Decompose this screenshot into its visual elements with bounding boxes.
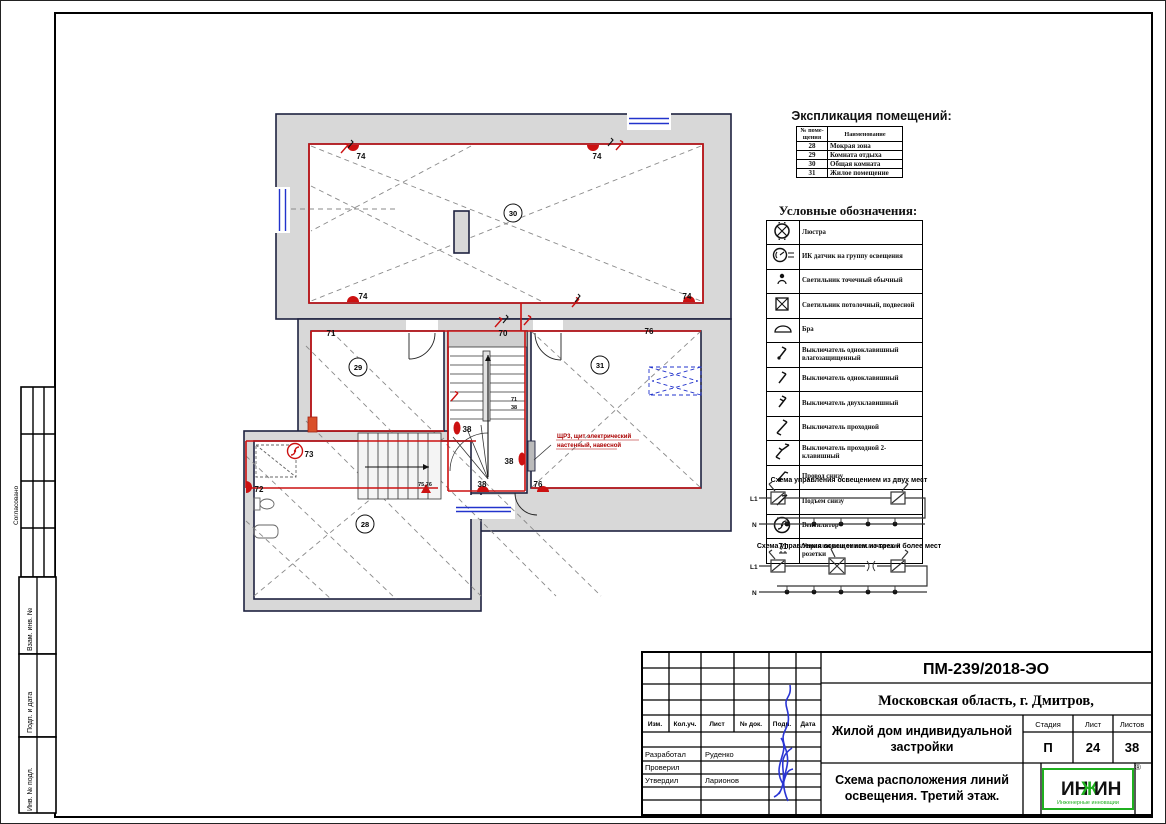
panel-note-line1: ЩР3, щит электрический — [557, 433, 631, 440]
col-izm: Изм. — [648, 721, 663, 728]
schematic-multi-places: L1 N — [750, 547, 927, 597]
explication-col-num: № поме- щения — [797, 127, 828, 142]
chandelier-icon — [770, 222, 796, 240]
legend-label: Выключатель проходной 2-клавишный — [800, 441, 923, 465]
switch-pass-icon — [770, 418, 796, 436]
chimney — [454, 211, 469, 253]
legend-row: Выключатель проходной — [767, 416, 923, 440]
legend-label: Бра — [800, 318, 923, 342]
room-number: 28 — [361, 520, 369, 529]
legend-label: Люстра — [800, 221, 923, 245]
legend-label: Выключатель двухклавишный — [800, 392, 923, 416]
role-approved: Утвердил — [645, 776, 678, 785]
project-title-line2: застройки — [891, 740, 954, 754]
room-num-cell: 31 — [797, 169, 828, 178]
room-num-cell: 30 — [797, 160, 828, 169]
legend-row: Выключатель одноклавишный влагозащищенны… — [767, 343, 923, 367]
legend-label: Выключатель одноклавишный — [800, 367, 923, 391]
room-name-cell: Жилое помещение — [828, 169, 903, 178]
room-number: 29 — [354, 363, 362, 372]
sheet-title-line2: освещения. Третий этаж. — [845, 789, 1000, 803]
switch-double-icon — [770, 393, 796, 411]
sheet-label: Лист — [1085, 720, 1102, 729]
pendant-light-icon — [770, 295, 796, 313]
inv-podl-label: Инв. № подл. — [27, 767, 34, 811]
point-label: 74 — [593, 152, 602, 161]
legend-label: Светильник точечный обычный — [800, 269, 923, 293]
room-num-cell: 29 — [797, 151, 828, 160]
sconce-icon — [770, 320, 796, 338]
doc-number: ПМ-239/2018-ЭО — [923, 661, 1049, 678]
switch-single-icon — [770, 369, 796, 387]
point-label: 76 — [645, 327, 654, 336]
company-logo: ИН Ж ИН Инженерные инновации ® — [1043, 763, 1141, 809]
logo-subtext: Инженерные инновации — [1057, 800, 1119, 806]
title-block: ПМ-239/2018-ЭО Московская область, г. Дм… — [641, 651, 1153, 816]
point-label: 74 — [357, 152, 366, 161]
legend-label: Светильник потолочный, подвесной — [800, 294, 923, 318]
schematic-two-places-title: Схема управления освещением из двух мест — [771, 477, 928, 484]
point-label: 76 — [534, 480, 543, 489]
n-label: N — [752, 590, 757, 597]
point-label: 38 — [478, 480, 487, 489]
role-checked: Проверил — [645, 763, 680, 772]
legend-title: Условные обозначения: — [763, 203, 933, 219]
floor-plan: 30 29 31 28 74 74 74 74 71 70 76 73 72 3… — [236, 106, 741, 621]
point-label: 72 — [255, 485, 264, 494]
role-developed: Разработал — [645, 750, 686, 759]
legend-label: Выключатель проходной — [800, 416, 923, 440]
col-list: Лист — [709, 721, 724, 728]
name-approved: Ларионов — [705, 776, 739, 785]
approval-grid: Согласовано — [13, 385, 59, 581]
table-row: 30 Общая комната — [797, 160, 903, 169]
vzam-inv-label: Взам. инв. № — [27, 608, 34, 651]
legend-row: Светильник потолочный, подвесной — [767, 294, 923, 318]
spot-light-icon — [770, 271, 796, 289]
explication-col-name: Наименование — [828, 127, 903, 142]
legend-row: Светильник точечный обычный — [767, 269, 923, 293]
approved-label: Согласовано — [13, 486, 20, 525]
col-ndok: № док. — [740, 721, 762, 728]
room-name-cell: Комната отдыха — [828, 151, 903, 160]
registered-mark: ® — [1135, 763, 1141, 772]
point-label: 71 — [327, 329, 336, 338]
room-num-cell: 28 — [797, 142, 828, 151]
explication-table: № поме- щения Наименование 28 Мокрая зон… — [796, 126, 903, 178]
point-label: 74 — [683, 292, 692, 301]
podp-data-label: Подп. и дата — [27, 692, 34, 733]
l1-label: L1 — [750, 496, 758, 503]
location-line: Московская область, г. Дмитров, — [878, 693, 1094, 709]
legend-label: ИК датчик на группу освещения — [800, 245, 923, 269]
spot-light-symbol — [519, 453, 526, 466]
legend-label: Выключатель одноклавишный влагозащищенны… — [800, 343, 923, 367]
electrical-panel — [528, 441, 535, 471]
sheets-label: Листов — [1120, 720, 1144, 729]
l1-label: L1 — [750, 564, 758, 571]
table-row: 28 Мокрая зона — [797, 142, 903, 151]
sheets-total: 38 — [1125, 740, 1139, 755]
switch-pass-double-icon — [770, 442, 796, 460]
control-schematics: Схема управления освещением из двух мест… — [739, 473, 963, 609]
point-label: 71 — [511, 397, 517, 403]
drawing-sheet: 30 29 31 28 74 74 74 74 71 70 76 73 72 3… — [0, 0, 1166, 824]
schematic-multi-places-title: Схема управления освещением из трех и бо… — [757, 542, 942, 550]
logo-text-part2: ИН — [1094, 779, 1121, 800]
room-number: 30 — [509, 209, 517, 218]
explication-title: Экспликация помещений: — [759, 109, 984, 123]
room-name-cell: Общая комната — [828, 160, 903, 169]
point-label: 74 — [359, 292, 368, 301]
point-label: 70 — [499, 329, 508, 338]
sheet-number: 24 — [1086, 740, 1101, 755]
stage-value: П — [1043, 740, 1052, 755]
panel-marker — [308, 417, 317, 432]
table-row: 29 Комната отдыха — [797, 151, 903, 160]
frame-attribute-cells: Взам. инв. № Подп. и дата Инв. № подл. — [13, 575, 59, 817]
spot-light-symbol — [454, 422, 461, 435]
point-label: 38 — [505, 457, 514, 466]
col-koluch: Кол.уч. — [674, 721, 697, 728]
legend-row: Выключатель проходной 2-клавишный — [767, 441, 923, 465]
n-label: N — [752, 522, 757, 529]
room-name-cell: Мокрая зона — [828, 142, 903, 151]
stage-label: Стадия — [1035, 720, 1061, 729]
sheet-title-line1: Схема расположения линий — [835, 773, 1009, 787]
ir-sensor-icon — [770, 246, 796, 264]
legend-row: Выключатель двухклавишный — [767, 392, 923, 416]
point-label: 75,76 — [418, 482, 432, 488]
panel-note-line2: настенный, навесной — [557, 442, 621, 449]
project-title-line1: Жилой дом индивидуальной — [831, 724, 1012, 738]
legend-row: Люстра — [767, 221, 923, 245]
switch-single-waterproof-icon — [770, 344, 796, 362]
room-number: 31 — [596, 361, 604, 370]
point-label: 38 — [463, 425, 472, 434]
legend-row: ИК датчик на группу освещения — [767, 245, 923, 269]
name-developed: Руденко — [705, 750, 734, 759]
legend-row: Выключатель одноклавишный — [767, 367, 923, 391]
schematic-two-places: L1 N — [750, 482, 925, 529]
col-data: Дата — [800, 721, 815, 728]
fan-symbol — [288, 444, 303, 459]
legend-row: Бра — [767, 318, 923, 342]
table-row: 31 Жилое помещение — [797, 169, 903, 178]
point-label: 73 — [305, 450, 314, 459]
point-label: 38 — [511, 405, 517, 411]
